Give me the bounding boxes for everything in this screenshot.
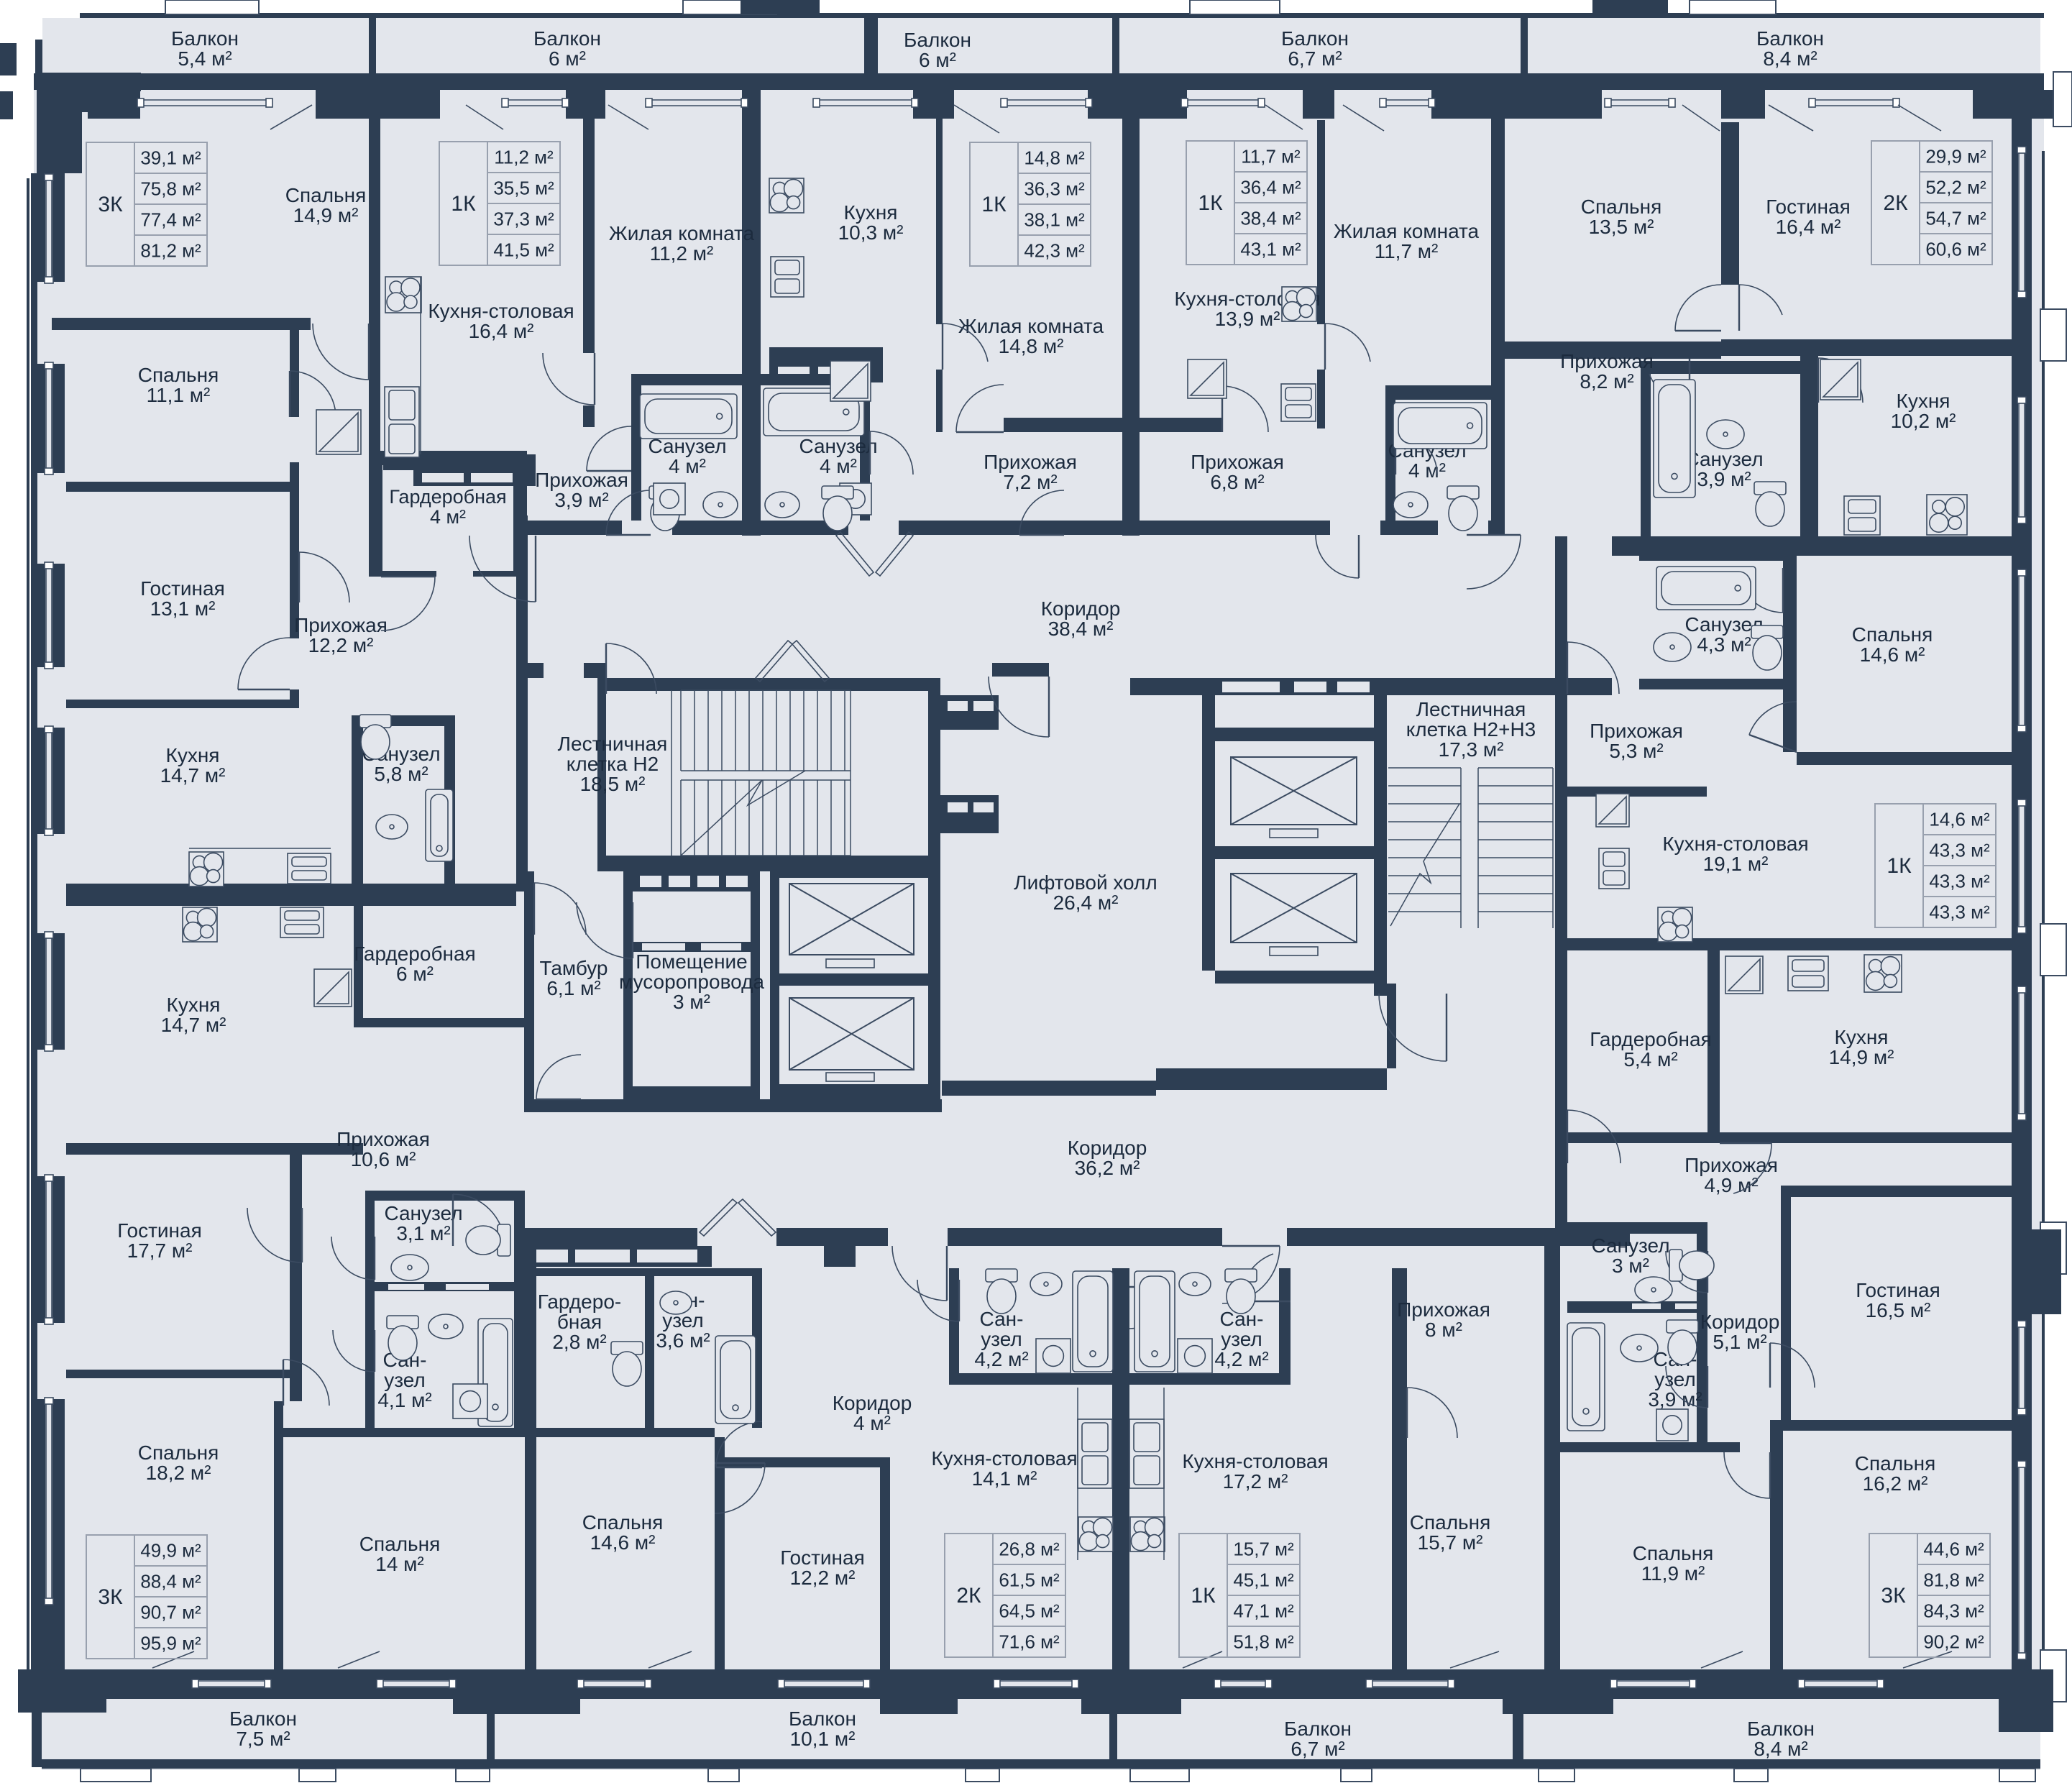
svg-text:Прихожая: Прихожая xyxy=(535,469,628,491)
svg-text:2,8 м²: 2,8 м² xyxy=(552,1331,606,1353)
svg-text:Прихожая: Прихожая xyxy=(1590,720,1683,742)
svg-text:5,4 м²: 5,4 м² xyxy=(178,47,232,70)
svg-text:88,4 м²: 88,4 м² xyxy=(140,1571,201,1592)
svg-text:Прихожая: Прихожая xyxy=(984,451,1077,473)
svg-text:90,7 м²: 90,7 м² xyxy=(140,1602,201,1623)
svg-text:5,8 м²: 5,8 м² xyxy=(374,763,428,785)
svg-text:42,3 м²: 42,3 м² xyxy=(1024,240,1085,262)
svg-text:8,2 м²: 8,2 м² xyxy=(1580,370,1633,393)
svg-text:узел: узел xyxy=(981,1328,1022,1350)
svg-text:11,2 м²: 11,2 м² xyxy=(650,242,714,265)
svg-text:6 м²: 6 м² xyxy=(549,47,586,70)
svg-text:Кухня: Кухня xyxy=(1835,1026,1889,1048)
svg-text:37,3 м²: 37,3 м² xyxy=(493,208,554,230)
svg-text:15,7 м²: 15,7 м² xyxy=(1418,1531,1483,1554)
svg-text:26,4 м²: 26,4 м² xyxy=(1053,891,1119,914)
svg-text:10,3 м²: 10,3 м² xyxy=(838,221,904,244)
svg-text:17,2 м²: 17,2 м² xyxy=(1223,1470,1288,1493)
svg-text:60,6 м²: 60,6 м² xyxy=(1925,239,1986,260)
svg-text:6,7 м²: 6,7 м² xyxy=(1288,47,1342,70)
svg-text:16,5 м²: 16,5 м² xyxy=(1866,1299,1931,1321)
svg-text:90,2 м²: 90,2 м² xyxy=(1923,1631,1984,1653)
svg-text:Балкон: Балкон xyxy=(1756,27,1824,50)
svg-text:Коридор: Коридор xyxy=(1068,1137,1147,1159)
svg-text:8 м²: 8 м² xyxy=(1425,1319,1462,1341)
svg-text:Балкон: Балкон xyxy=(533,27,601,50)
svg-text:54,7 м²: 54,7 м² xyxy=(1925,208,1986,229)
svg-text:Гостиная: Гостиная xyxy=(117,1219,202,1242)
svg-text:1К: 1К xyxy=(1191,1584,1216,1608)
svg-text:1К: 1К xyxy=(981,193,1007,216)
svg-text:16,4 м²: 16,4 м² xyxy=(1776,216,1841,238)
svg-text:44,6 м²: 44,6 м² xyxy=(1923,1539,1984,1560)
svg-text:84,3 м²: 84,3 м² xyxy=(1923,1600,1984,1622)
svg-text:6,8 м²: 6,8 м² xyxy=(1210,471,1264,493)
svg-text:Балкон: Балкон xyxy=(171,27,239,50)
svg-text:45,1 м²: 45,1 м² xyxy=(1233,1569,1294,1591)
svg-text:Коридор: Коридор xyxy=(1041,597,1121,620)
svg-text:38,4 м²: 38,4 м² xyxy=(1048,618,1114,640)
svg-text:43,3 м²: 43,3 м² xyxy=(1929,840,1990,861)
svg-text:18,2 м²: 18,2 м² xyxy=(146,1462,211,1484)
svg-text:Кухня-столовая: Кухня-столовая xyxy=(1182,1450,1328,1472)
svg-text:Кухня-столовая: Кухня-столовая xyxy=(428,300,574,322)
svg-text:Коридор: Коридор xyxy=(833,1392,912,1414)
svg-text:клетка Н2: клетка Н2 xyxy=(567,753,659,775)
svg-text:43,3 м²: 43,3 м² xyxy=(1929,871,1990,892)
svg-text:6,1 м²: 6,1 м² xyxy=(546,977,600,999)
svg-text:Гостиная: Гостиная xyxy=(1856,1279,1940,1301)
svg-text:Жилая комната: Жилая комната xyxy=(1334,220,1480,242)
svg-text:3 м²: 3 м² xyxy=(673,991,710,1013)
svg-text:Спальня: Спальня xyxy=(1581,196,1662,218)
svg-text:Гардеробная: Гардеробная xyxy=(354,943,475,965)
svg-text:38,1 м²: 38,1 м² xyxy=(1024,209,1085,231)
svg-text:Балкон: Балкон xyxy=(1747,1718,1815,1740)
svg-text:1К: 1К xyxy=(1198,191,1223,215)
svg-text:14,8 м²: 14,8 м² xyxy=(1024,147,1085,169)
svg-text:2К: 2К xyxy=(956,1584,981,1608)
svg-text:5,1 м²: 5,1 м² xyxy=(1713,1331,1766,1353)
svg-text:75,8 м²: 75,8 м² xyxy=(140,178,201,200)
svg-text:Кухня-столовая: Кухня-столовая xyxy=(931,1447,1077,1470)
svg-text:8,4 м²: 8,4 м² xyxy=(1754,1738,1807,1760)
svg-text:Кухня: Кухня xyxy=(1897,390,1950,412)
svg-text:5,4 м²: 5,4 м² xyxy=(1623,1048,1677,1071)
svg-text:71,6 м²: 71,6 м² xyxy=(999,1631,1060,1653)
svg-text:41,5 м²: 41,5 м² xyxy=(493,239,554,261)
svg-text:4 м²: 4 м² xyxy=(853,1412,891,1434)
svg-text:Жилая комната: Жилая комната xyxy=(609,222,755,244)
svg-text:узел: узел xyxy=(384,1369,426,1391)
svg-text:12,2 м²: 12,2 м² xyxy=(308,634,374,656)
svg-text:мусоропровода: мусоропровода xyxy=(619,971,764,993)
svg-text:Спальня: Спальня xyxy=(359,1533,441,1555)
svg-text:3 м²: 3 м² xyxy=(1612,1255,1649,1277)
svg-text:16,4 м²: 16,4 м² xyxy=(469,320,534,342)
svg-text:3,9 м²: 3,9 м² xyxy=(1697,468,1751,490)
svg-text:95,9 м²: 95,9 м² xyxy=(140,1633,201,1654)
svg-text:Гардеробная: Гардеробная xyxy=(1590,1028,1711,1050)
svg-text:51,8 м²: 51,8 м² xyxy=(1233,1631,1294,1653)
svg-text:6 м²: 6 м² xyxy=(396,963,434,985)
svg-text:4 м²: 4 м² xyxy=(430,506,466,528)
svg-text:Спальня: Спальня xyxy=(1633,1542,1714,1564)
svg-text:43,3 м²: 43,3 м² xyxy=(1929,902,1990,923)
svg-text:Прихожая: Прихожая xyxy=(336,1128,430,1150)
svg-text:14,6 м²: 14,6 м² xyxy=(1929,809,1990,830)
svg-text:14,6 м²: 14,6 м² xyxy=(590,1531,656,1554)
svg-text:14,7 м²: 14,7 м² xyxy=(160,764,226,787)
svg-text:14 м²: 14 м² xyxy=(375,1553,424,1575)
svg-text:11,7 м²: 11,7 м² xyxy=(1241,146,1301,168)
svg-text:4,3 м²: 4,3 м² xyxy=(1697,633,1751,656)
svg-text:Прихожая: Прихожая xyxy=(1560,350,1654,372)
svg-text:4 м²: 4 м² xyxy=(1408,459,1446,482)
svg-text:Санузел: Санузел xyxy=(384,1202,462,1224)
svg-text:43,1 м²: 43,1 м² xyxy=(1240,239,1301,260)
svg-text:Спальня: Спальня xyxy=(1852,623,1933,646)
svg-text:38,4 м²: 38,4 м² xyxy=(1240,208,1301,229)
svg-text:Кухня: Кухня xyxy=(844,201,898,224)
svg-text:14,9 м²: 14,9 м² xyxy=(1829,1046,1894,1068)
svg-text:Тамбур: Тамбур xyxy=(539,957,608,979)
svg-text:Кухня: Кухня xyxy=(166,744,220,766)
svg-text:15,7 м²: 15,7 м² xyxy=(1233,1539,1294,1560)
svg-text:бная: бная xyxy=(557,1311,602,1333)
svg-text:Кухня-столовая: Кухня-столовая xyxy=(1662,833,1808,855)
svg-text:19,1 м²: 19,1 м² xyxy=(1703,853,1769,875)
svg-text:3К: 3К xyxy=(98,1585,123,1609)
svg-text:Санузел: Санузел xyxy=(1684,448,1763,470)
svg-text:Лифтовой холл: Лифтовой холл xyxy=(1014,871,1157,894)
svg-text:3К: 3К xyxy=(98,193,123,216)
svg-text:Лестничная: Лестничная xyxy=(558,733,668,755)
svg-text:36,3 м²: 36,3 м² xyxy=(1024,178,1085,200)
svg-text:клетка Н2+Н3: клетка Н2+Н3 xyxy=(1406,718,1536,741)
svg-text:Жилая комната: Жилая комната xyxy=(958,315,1104,337)
svg-text:Прихожая: Прихожая xyxy=(1684,1154,1778,1176)
svg-text:81,8 м²: 81,8 м² xyxy=(1923,1569,1984,1591)
svg-text:8,4 м²: 8,4 м² xyxy=(1763,47,1817,70)
svg-text:3,6 м²: 3,6 м² xyxy=(656,1329,710,1352)
svg-text:4 м²: 4 м² xyxy=(669,455,706,477)
svg-text:77,4 м²: 77,4 м² xyxy=(140,209,201,231)
svg-text:14,8 м²: 14,8 м² xyxy=(999,335,1064,357)
svg-text:Спальня: Спальня xyxy=(1855,1452,1936,1475)
svg-text:1К: 1К xyxy=(451,192,476,216)
svg-text:14,6 м²: 14,6 м² xyxy=(1860,643,1925,666)
svg-text:52,2 м²: 52,2 м² xyxy=(1925,177,1986,198)
svg-text:6 м²: 6 м² xyxy=(919,49,956,71)
svg-text:Помещение: Помещение xyxy=(636,950,748,973)
svg-text:1К: 1К xyxy=(1887,854,1912,878)
svg-text:26,8 м²: 26,8 м² xyxy=(999,1539,1060,1560)
svg-text:12,2 м²: 12,2 м² xyxy=(790,1567,856,1589)
svg-text:Спальня: Спальня xyxy=(285,184,367,206)
svg-text:17,7 м²: 17,7 м² xyxy=(127,1239,193,1262)
svg-text:18,5 м²: 18,5 м² xyxy=(580,773,646,795)
svg-text:81,2 м²: 81,2 м² xyxy=(140,240,201,262)
svg-text:13,9 м²: 13,9 м² xyxy=(1215,308,1280,330)
svg-text:3,1 м²: 3,1 м² xyxy=(396,1222,450,1245)
svg-text:14,7 м²: 14,7 м² xyxy=(161,1014,226,1036)
svg-text:10,6 м²: 10,6 м² xyxy=(351,1148,416,1170)
svg-text:2К: 2К xyxy=(1883,191,1908,215)
svg-text:49,9 м²: 49,9 м² xyxy=(140,1540,201,1562)
svg-text:узел: узел xyxy=(1654,1368,1696,1390)
svg-text:Коридор: Коридор xyxy=(1700,1311,1780,1333)
svg-text:Гардеро-: Гардеро- xyxy=(538,1291,621,1313)
svg-text:Балкон: Балкон xyxy=(789,1708,856,1730)
svg-text:13,5 м²: 13,5 м² xyxy=(1589,216,1654,238)
svg-text:11,9 м²: 11,9 м² xyxy=(1641,1562,1705,1585)
svg-text:61,5 м²: 61,5 м² xyxy=(999,1569,1060,1591)
svg-text:Прихожая: Прихожая xyxy=(1397,1298,1490,1321)
svg-text:35,5 м²: 35,5 м² xyxy=(493,178,554,199)
svg-text:4 м²: 4 м² xyxy=(820,455,857,477)
svg-text:Санузел: Санузел xyxy=(1591,1234,1669,1257)
svg-text:Гостиная: Гостиная xyxy=(780,1546,865,1569)
svg-text:14,9 м²: 14,9 м² xyxy=(293,204,359,226)
svg-text:Гардеробная: Гардеробная xyxy=(389,486,506,508)
svg-text:Балкон: Балкон xyxy=(904,29,971,51)
svg-text:4,2 м²: 4,2 м² xyxy=(974,1348,1028,1370)
svg-text:Лестничная: Лестничная xyxy=(1416,698,1526,720)
svg-text:4,1 м²: 4,1 м² xyxy=(377,1389,431,1411)
svg-text:13,1 м²: 13,1 м² xyxy=(150,597,216,620)
svg-text:узел: узел xyxy=(1221,1328,1262,1350)
svg-text:3К: 3К xyxy=(1881,1584,1906,1608)
svg-text:Спальня: Спальня xyxy=(138,364,219,386)
svg-text:29,9 м²: 29,9 м² xyxy=(1925,146,1986,168)
svg-text:Прихожая: Прихожая xyxy=(294,614,388,636)
svg-text:Кухня: Кухня xyxy=(167,994,221,1016)
svg-text:36,2 м²: 36,2 м² xyxy=(1075,1157,1140,1179)
svg-text:16,2 м²: 16,2 м² xyxy=(1863,1472,1928,1495)
svg-text:Гостиная: Гостиная xyxy=(1766,196,1851,218)
svg-text:47,1 м²: 47,1 м² xyxy=(1233,1600,1294,1622)
svg-text:64,5 м²: 64,5 м² xyxy=(999,1600,1060,1622)
svg-text:5,3 м²: 5,3 м² xyxy=(1609,740,1663,762)
svg-text:Балкон: Балкон xyxy=(229,1708,297,1730)
svg-text:4,2 м²: 4,2 м² xyxy=(1214,1348,1268,1370)
svg-text:7,5 м²: 7,5 м² xyxy=(236,1728,290,1750)
svg-text:10,1 м²: 10,1 м² xyxy=(790,1728,856,1750)
svg-text:14,1 м²: 14,1 м² xyxy=(972,1467,1037,1490)
svg-text:Балкон: Балкон xyxy=(1281,27,1349,50)
svg-text:7,2 м²: 7,2 м² xyxy=(1003,471,1057,493)
svg-text:17,3 м²: 17,3 м² xyxy=(1439,738,1504,761)
svg-text:36,4 м²: 36,4 м² xyxy=(1240,177,1301,198)
svg-text:Спальня: Спальня xyxy=(1410,1511,1491,1534)
svg-text:3,9 м²: 3,9 м² xyxy=(554,489,608,511)
svg-text:Гостиная: Гостиная xyxy=(140,577,225,600)
svg-text:10,2 м²: 10,2 м² xyxy=(1891,410,1956,432)
svg-text:6,7 м²: 6,7 м² xyxy=(1291,1738,1344,1760)
svg-text:Балкон: Балкон xyxy=(1284,1718,1352,1740)
svg-text:Прихожая: Прихожая xyxy=(1191,451,1284,473)
svg-text:11,7 м²: 11,7 м² xyxy=(1375,240,1439,262)
svg-text:39,1 м²: 39,1 м² xyxy=(140,147,201,169)
svg-text:11,1 м²: 11,1 м² xyxy=(147,384,211,406)
svg-text:Спальня: Спальня xyxy=(138,1441,219,1464)
svg-text:Спальня: Спальня xyxy=(582,1511,664,1534)
svg-text:11,2 м²: 11,2 м² xyxy=(494,147,554,168)
svg-text:Санузел: Санузел xyxy=(799,435,877,457)
